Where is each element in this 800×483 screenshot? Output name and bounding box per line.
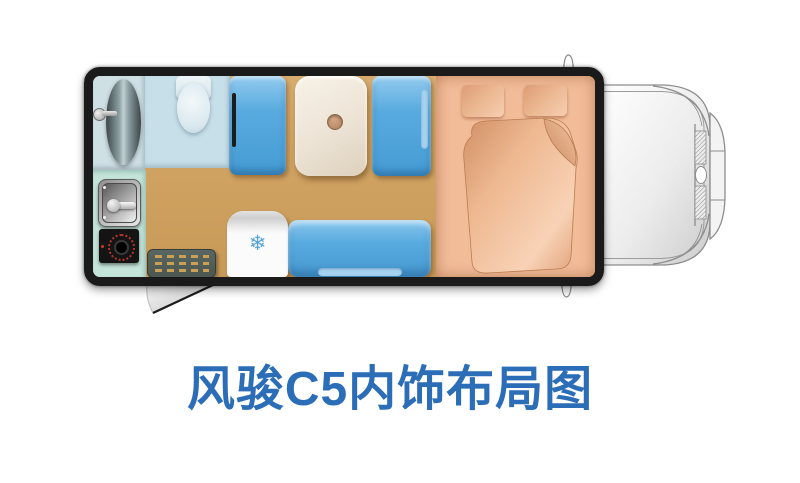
table-cupholder xyxy=(327,114,343,130)
dinette-seat-rear xyxy=(372,76,431,176)
pillow-left xyxy=(462,85,504,117)
mat-dashes xyxy=(155,269,209,272)
sofa xyxy=(288,220,431,277)
sink-faucet-knob xyxy=(107,199,120,212)
pillow-right xyxy=(524,85,567,116)
toilet-room xyxy=(145,76,230,168)
shower-faucet-handle xyxy=(102,111,117,116)
burner-ring xyxy=(108,234,135,261)
sofa-armrest-pill xyxy=(318,268,402,276)
bed-area xyxy=(436,76,595,277)
seat-belt-bar xyxy=(232,93,236,147)
dinette-table xyxy=(295,76,367,176)
stove-indicator-dot xyxy=(101,245,104,248)
stove xyxy=(99,229,139,263)
entry-step-mat xyxy=(147,249,216,278)
cab-outline xyxy=(600,85,710,265)
mat-dashes xyxy=(155,262,209,265)
sink-screw xyxy=(103,186,106,189)
shower-room xyxy=(93,76,145,170)
page: { "title": { "text": "风骏C5内饰布局图" }, "dia… xyxy=(0,0,800,483)
entry-door-swing xyxy=(147,285,213,313)
sink-screw xyxy=(103,216,106,219)
toilet-bowl xyxy=(177,83,210,133)
cab-body xyxy=(600,85,725,265)
snowflake-icon: ❄ xyxy=(249,232,267,255)
burner-core xyxy=(114,240,129,255)
dinette-seat-front xyxy=(229,76,286,175)
cab-emblem xyxy=(696,167,707,184)
trailer-outline: ❄ xyxy=(84,67,604,286)
duvet xyxy=(448,116,588,276)
mat-dashes xyxy=(155,255,209,258)
page-title: 风骏C5内饰布局图 xyxy=(170,349,610,405)
fridge: ❄ xyxy=(227,211,288,277)
shower-tray xyxy=(106,79,141,165)
grille-vent-bottom xyxy=(695,186,706,219)
grille-vent-top xyxy=(695,131,706,164)
sink xyxy=(98,179,141,227)
kitchen-unit xyxy=(93,170,146,277)
seat-headrest-pill xyxy=(421,89,428,149)
front-bumper xyxy=(710,113,725,239)
